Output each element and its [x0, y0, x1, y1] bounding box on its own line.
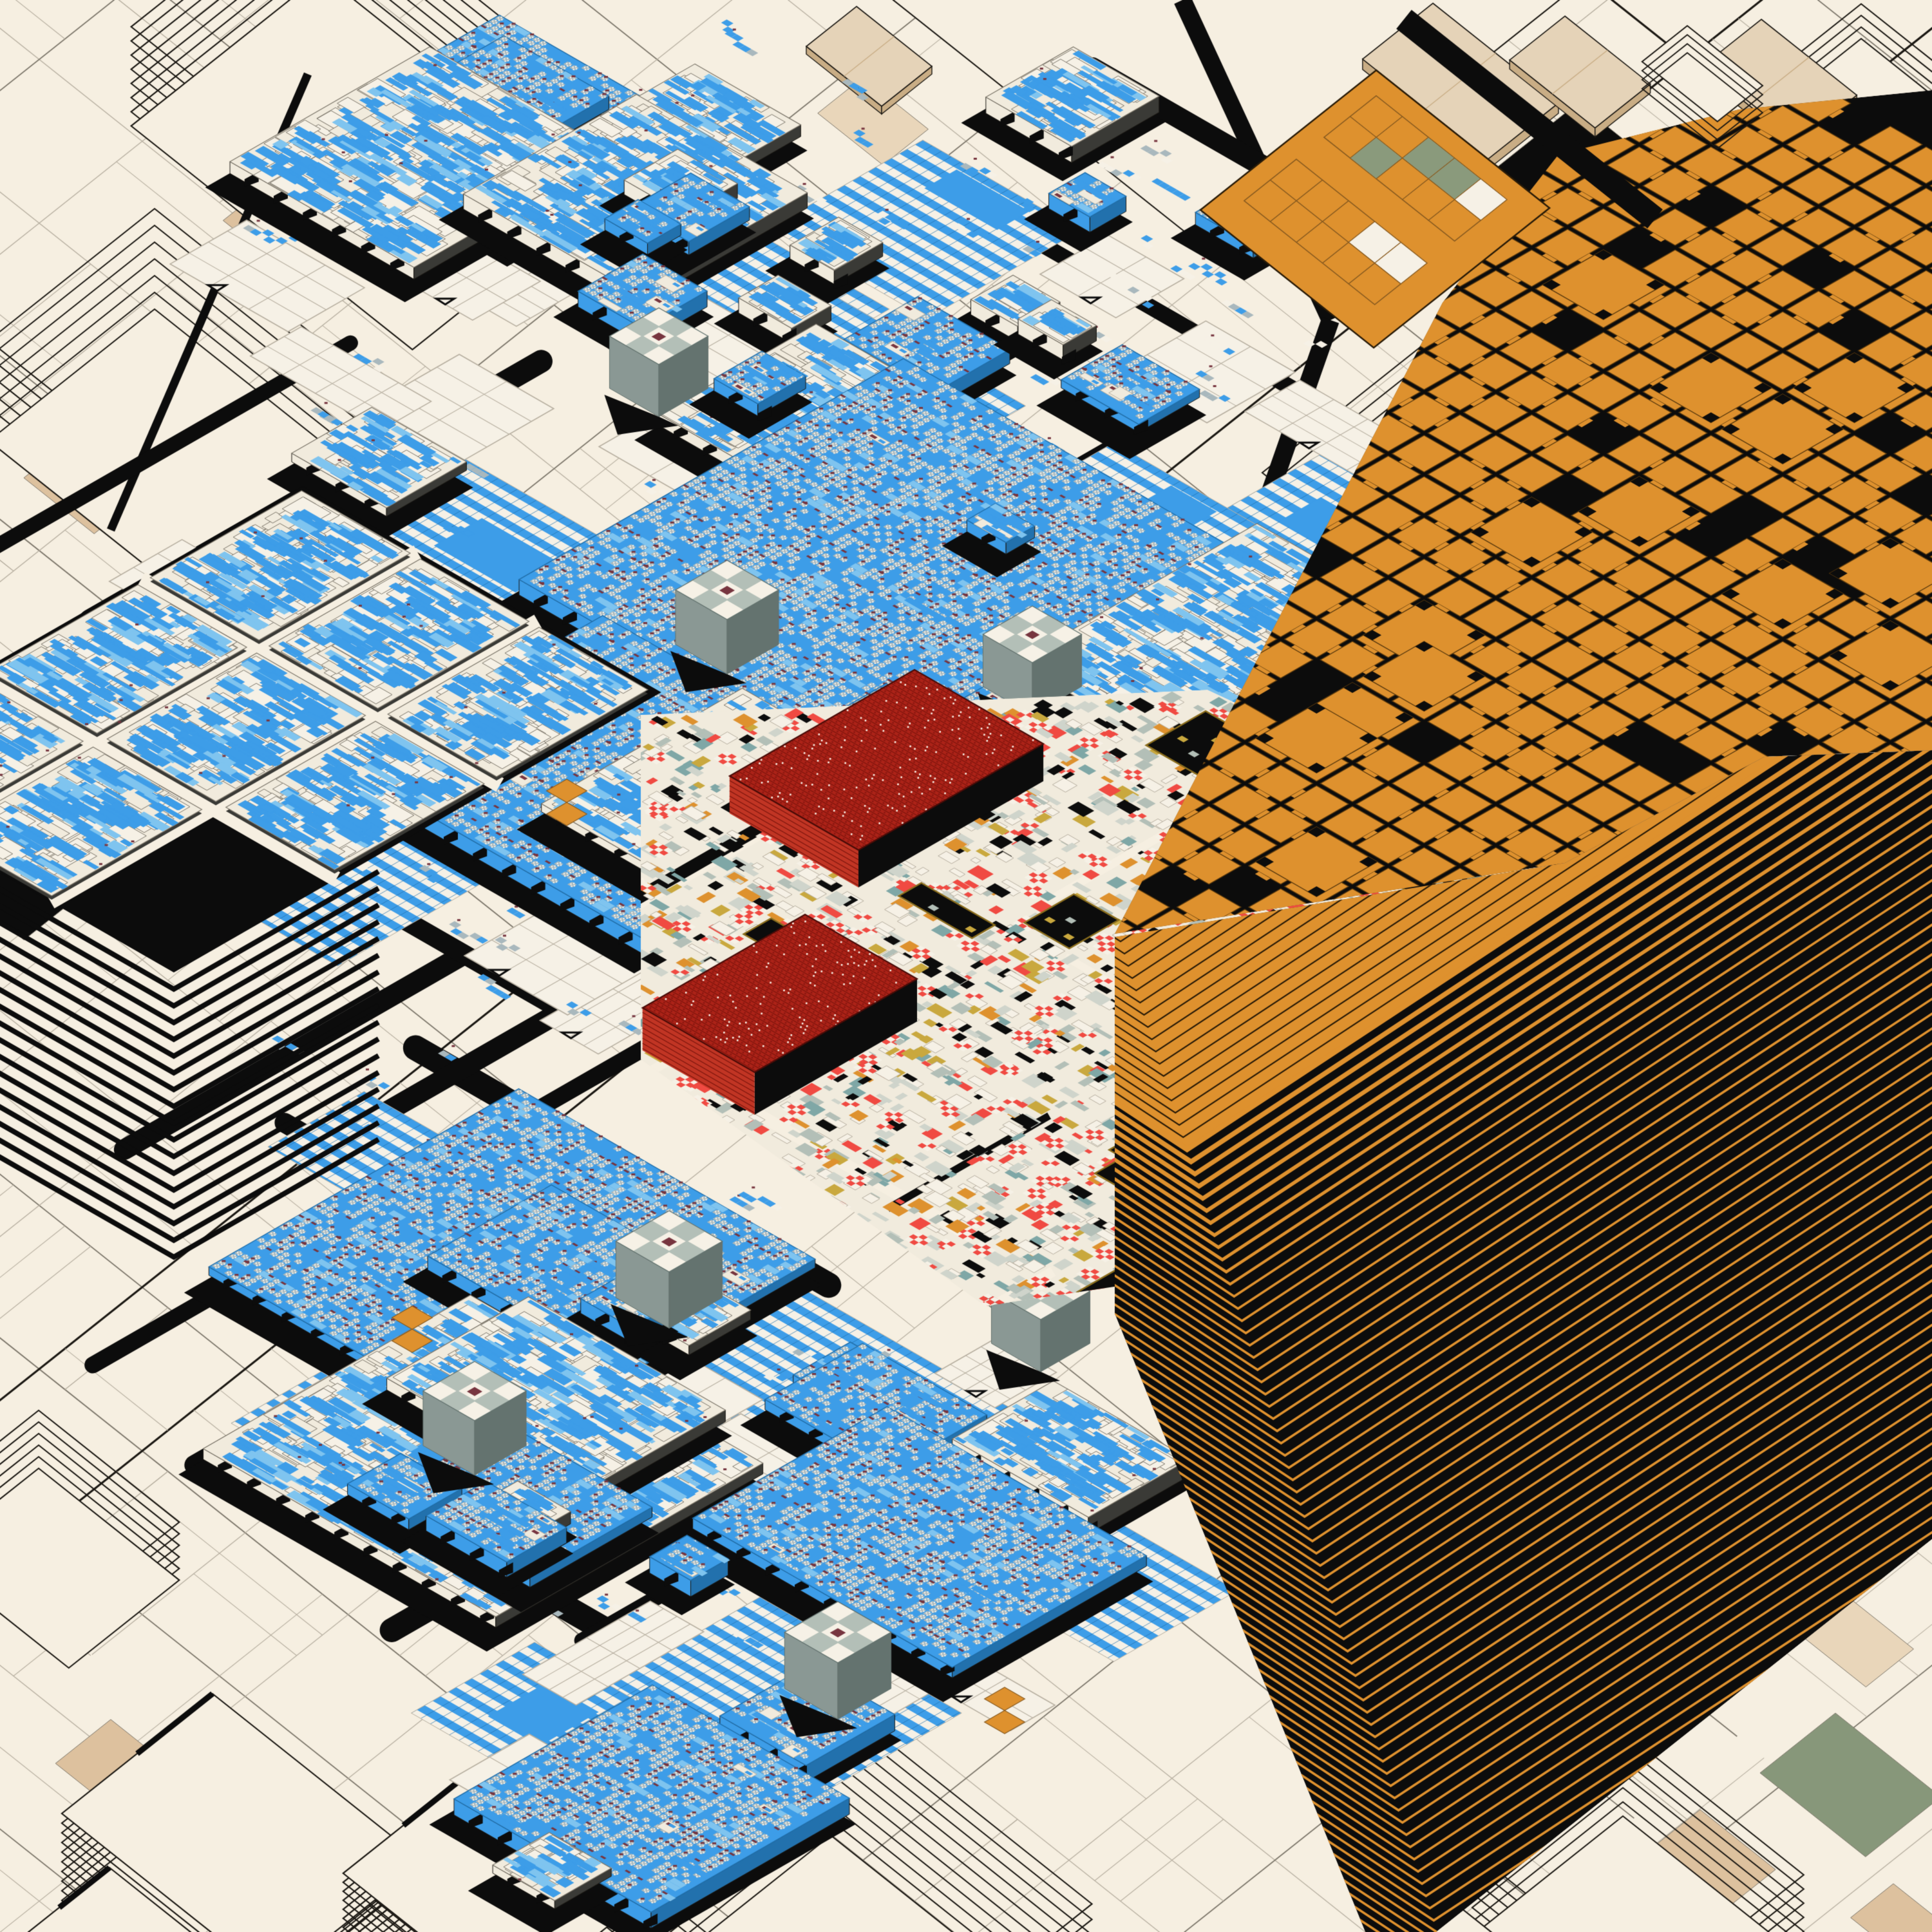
artwork-canvas — [0, 0, 1932, 1932]
generative-iso-city-artwork — [0, 0, 1932, 1932]
